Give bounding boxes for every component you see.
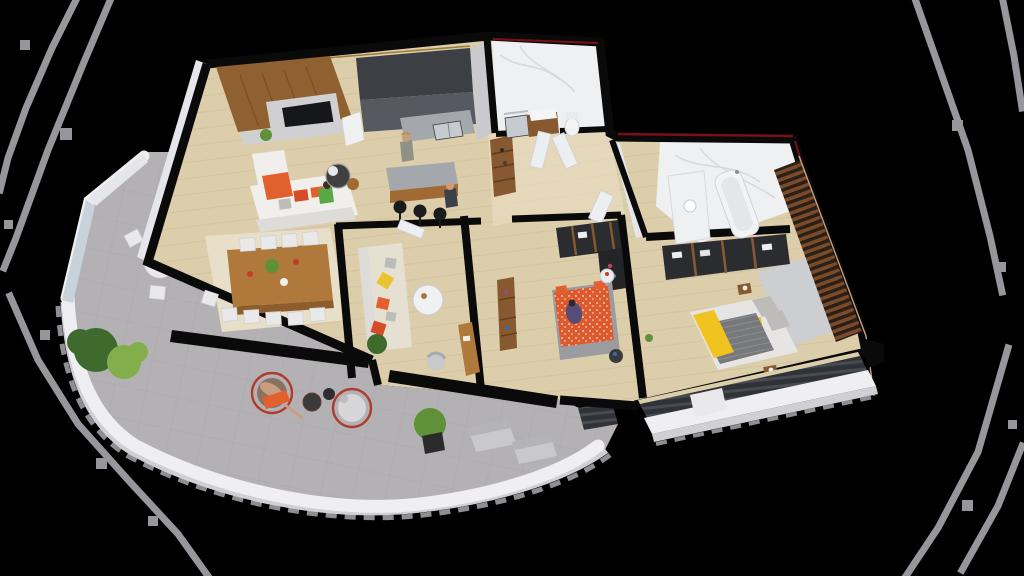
faucet [735, 170, 739, 174]
wood-side-stool [347, 178, 359, 190]
desk-papers [463, 336, 470, 342]
shelf-books [672, 251, 683, 258]
shower-tray [505, 115, 529, 138]
gray-pillow [278, 198, 291, 210]
master-south-wall [560, 400, 638, 406]
table-decor [421, 293, 427, 299]
floorplan-render [0, 0, 1024, 576]
person-seated [340, 401, 360, 415]
round-coffee-table [413, 285, 443, 315]
tree-light [128, 342, 148, 362]
outdoor-chair [149, 285, 165, 299]
shoes [500, 148, 504, 152]
white-pillow [384, 257, 396, 268]
person-head [340, 395, 348, 403]
orange-throw [262, 172, 293, 200]
backsplash-marble [342, 112, 364, 146]
dining-table [227, 244, 333, 307]
white-dish [280, 278, 288, 286]
red-dish [247, 271, 253, 277]
orange-pillow [293, 189, 308, 202]
shoes [503, 161, 507, 165]
decor-item [605, 272, 609, 276]
book [506, 326, 510, 330]
lamp [743, 286, 748, 291]
table-centerpiece-plant [265, 259, 279, 273]
red-dish [293, 259, 299, 265]
ledge-plant [260, 129, 272, 141]
hall-bookshelf [497, 277, 517, 351]
toilet [565, 118, 579, 136]
wire-side-table-small [323, 388, 335, 400]
basin [684, 200, 696, 212]
shelf-books [762, 243, 773, 250]
wire-side-table [303, 393, 321, 411]
shelf-items [578, 231, 588, 238]
decor-item [613, 352, 617, 356]
hanging-clothes [608, 264, 612, 268]
tree-dark [67, 329, 93, 355]
person-on-sofa [318, 187, 334, 204]
shelf-books [700, 249, 711, 256]
book [504, 290, 508, 294]
small-plant [645, 334, 653, 342]
coffee-table-tray [328, 166, 338, 176]
render-canvas [0, 0, 1024, 576]
toilet-tank [566, 112, 578, 120]
orange-duvet [554, 285, 614, 347]
round-side-table-dark [609, 349, 623, 363]
orange-pillow [555, 285, 567, 294]
lounge-plant [367, 334, 387, 354]
gray-pillow [385, 311, 396, 321]
